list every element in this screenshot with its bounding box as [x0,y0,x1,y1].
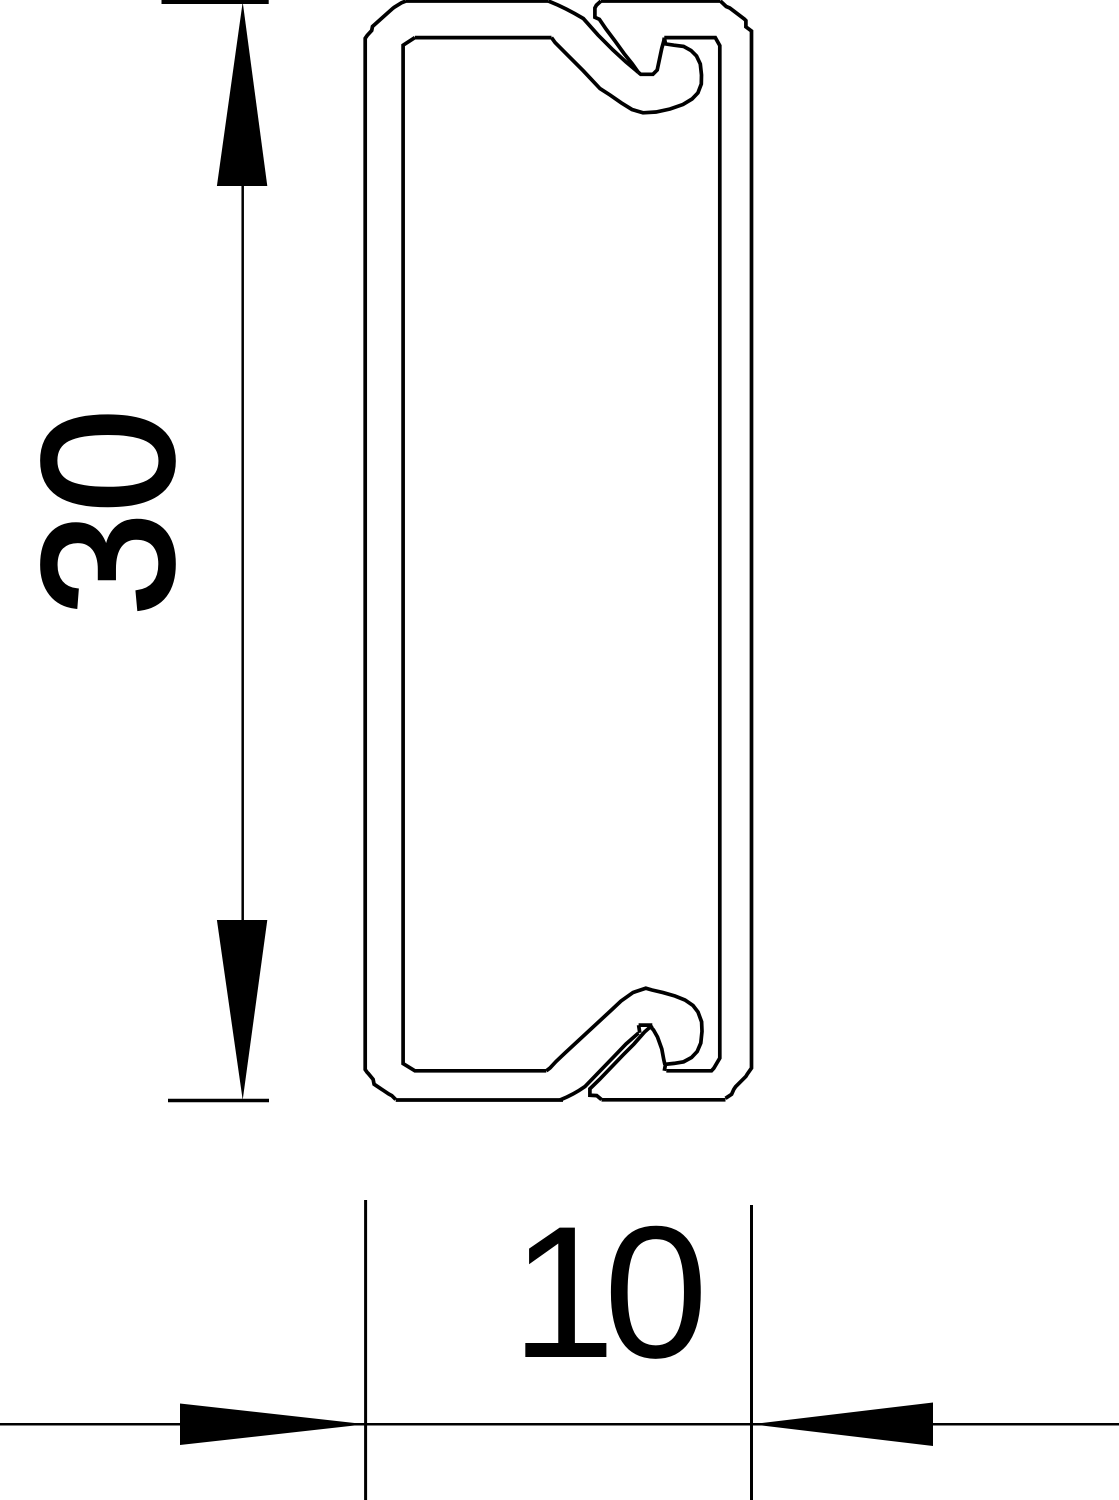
svg-text:10: 10 [511,1187,702,1397]
svg-text:30: 30 [5,409,212,616]
